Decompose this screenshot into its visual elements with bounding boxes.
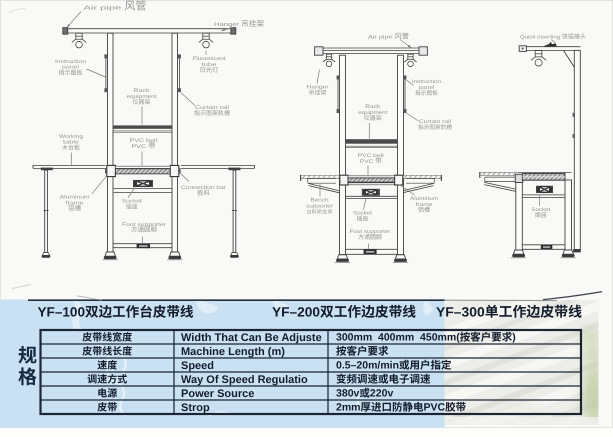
- svg-text:Hanger: Hanger: [214, 22, 241, 28]
- svg-text:equipment: equipment: [358, 110, 388, 116]
- svg-text:Connection bar: Connection bar: [181, 185, 226, 191]
- svg-text:PVC: PVC: [132, 144, 149, 150]
- svg-text:equipment: equipment: [127, 94, 158, 100]
- svg-text:Speed: Speed: [181, 360, 214, 372]
- svg-text:panel: panel: [62, 65, 79, 71]
- svg-text:Foot supporter: Foot supporter: [350, 229, 391, 235]
- svg-text:table: table: [63, 140, 79, 146]
- svg-text:Width That Can Be Adjuste: Width That Can Be Adjuste: [181, 332, 322, 344]
- svg-text:supporter: supporter: [306, 204, 333, 210]
- svg-text:2mm: 2mm: [336, 402, 361, 414]
- svg-text:frame: frame: [416, 202, 433, 208]
- svg-text:Curtain rail: Curtain rail: [195, 105, 229, 111]
- svg-text:Socket: Socket: [531, 207, 551, 213]
- svg-text:): ): [512, 332, 516, 344]
- svg-text:Quick inserting: Quick inserting: [520, 34, 562, 40]
- svg-text:0.5–20m/min: 0.5–20m/min: [336, 360, 399, 372]
- svg-text:380v: 380v: [336, 388, 360, 400]
- svg-text:YF–300: YF–300: [436, 305, 485, 320]
- svg-text:Air pipe: Air pipe: [368, 35, 395, 41]
- svg-text:PVC: PVC: [360, 159, 375, 165]
- svg-text:300mm 400mm 450mm(: 300mm 400mm 450mm(: [336, 332, 460, 344]
- svg-text:Power Source: Power Source: [181, 388, 254, 400]
- svg-text:Foot supporter: Foot supporter: [122, 222, 166, 228]
- svg-text:frame: frame: [66, 200, 84, 206]
- svg-text:Socket: Socket: [353, 211, 373, 217]
- svg-text:panel: panel: [419, 85, 435, 91]
- svg-text:Curtain rail: Curtain rail: [419, 119, 451, 125]
- svg-text:220v: 220v: [370, 388, 394, 400]
- svg-text:YF–200: YF–200: [272, 305, 320, 320]
- svg-text:YF–100: YF–100: [38, 305, 86, 320]
- svg-text:Strop: Strop: [181, 402, 210, 414]
- svg-text:Hanger: Hanger: [307, 85, 329, 91]
- svg-text:Way Of Speed Regulatio: Way Of Speed Regulatio: [181, 374, 308, 386]
- svg-text:Machine Length (m): Machine Length (m): [181, 346, 285, 358]
- svg-text:Socket: Socket: [122, 199, 143, 205]
- svg-text:PVC: PVC: [424, 402, 446, 414]
- svg-text:Air pipe: Air pipe: [84, 6, 125, 12]
